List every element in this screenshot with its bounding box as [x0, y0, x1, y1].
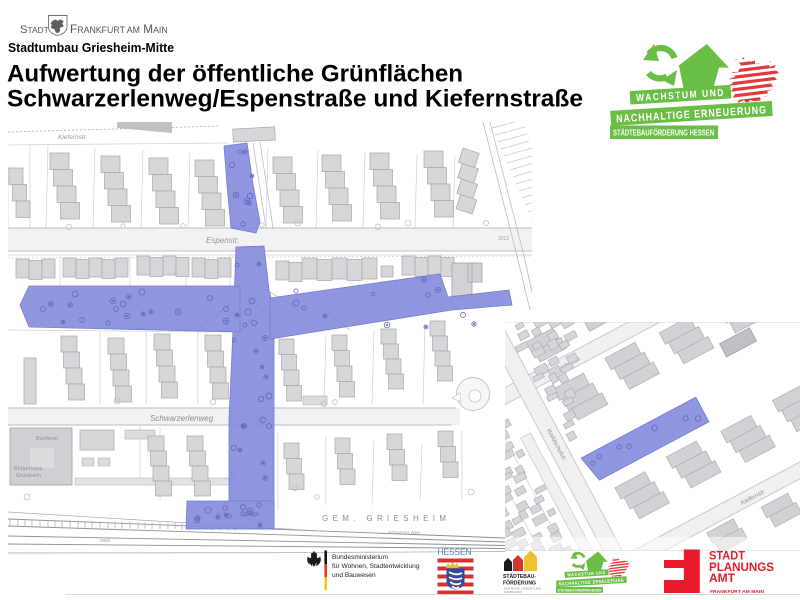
svg-text:KOMMUNEN: KOMMUNEN: [504, 590, 522, 594]
svg-text:Bücherei: Bücherei: [36, 436, 58, 442]
svg-text:Bürgerhaus: Bürgerhaus: [14, 466, 43, 472]
svg-text:Schwarzerlenweg/Espenstraße un: Schwarzerlenweg/Espenstraße und Kieferns…: [7, 86, 583, 113]
svg-text:GEM. GRIESHEIM: GEM. GRIESHEIM: [322, 514, 450, 523]
svg-text:2013: 2013: [498, 236, 509, 242]
svg-text:FRANKFURT AM MAIN: FRANKFURT AM MAIN: [70, 22, 168, 36]
svg-text:Stadtumbau Griesheim-Mitte: Stadtumbau Griesheim-Mitte: [8, 40, 174, 55]
svg-text:für Wohnen, Stadtentwicklung: für Wohnen, Stadtentwicklung: [332, 563, 420, 570]
svg-text:Griesheim: Griesheim: [16, 473, 41, 479]
svg-text:Schwarzer Weg: Schwarzer Weg: [388, 530, 420, 535]
svg-text:AMT: AMT: [709, 571, 736, 585]
svg-text:Spielpl.: Spielpl.: [240, 512, 260, 518]
svg-text:und Bauwesen: und Bauwesen: [332, 572, 376, 579]
svg-text:Bundesministerium: Bundesministerium: [332, 554, 389, 561]
svg-text:STÄDTEBAU-: STÄDTEBAU-: [503, 573, 536, 580]
svg-text:FÖRDERUNG: FÖRDERUNG: [503, 580, 536, 587]
svg-text:2805: 2805: [100, 538, 111, 543]
svg-text:HESSEN: HESSEN: [438, 547, 472, 557]
svg-text:Espenstr.: Espenstr.: [206, 236, 240, 245]
svg-text:Schwarzerlenweg: Schwarzerlenweg: [150, 414, 214, 423]
svg-text:Aufwertung der öffentliche Grü: Aufwertung der öffentliche Grünflächen: [7, 61, 463, 88]
svg-text:Kiefernstr.: Kiefernstr.: [58, 134, 88, 141]
svg-text:STADT: STADT: [20, 24, 49, 36]
